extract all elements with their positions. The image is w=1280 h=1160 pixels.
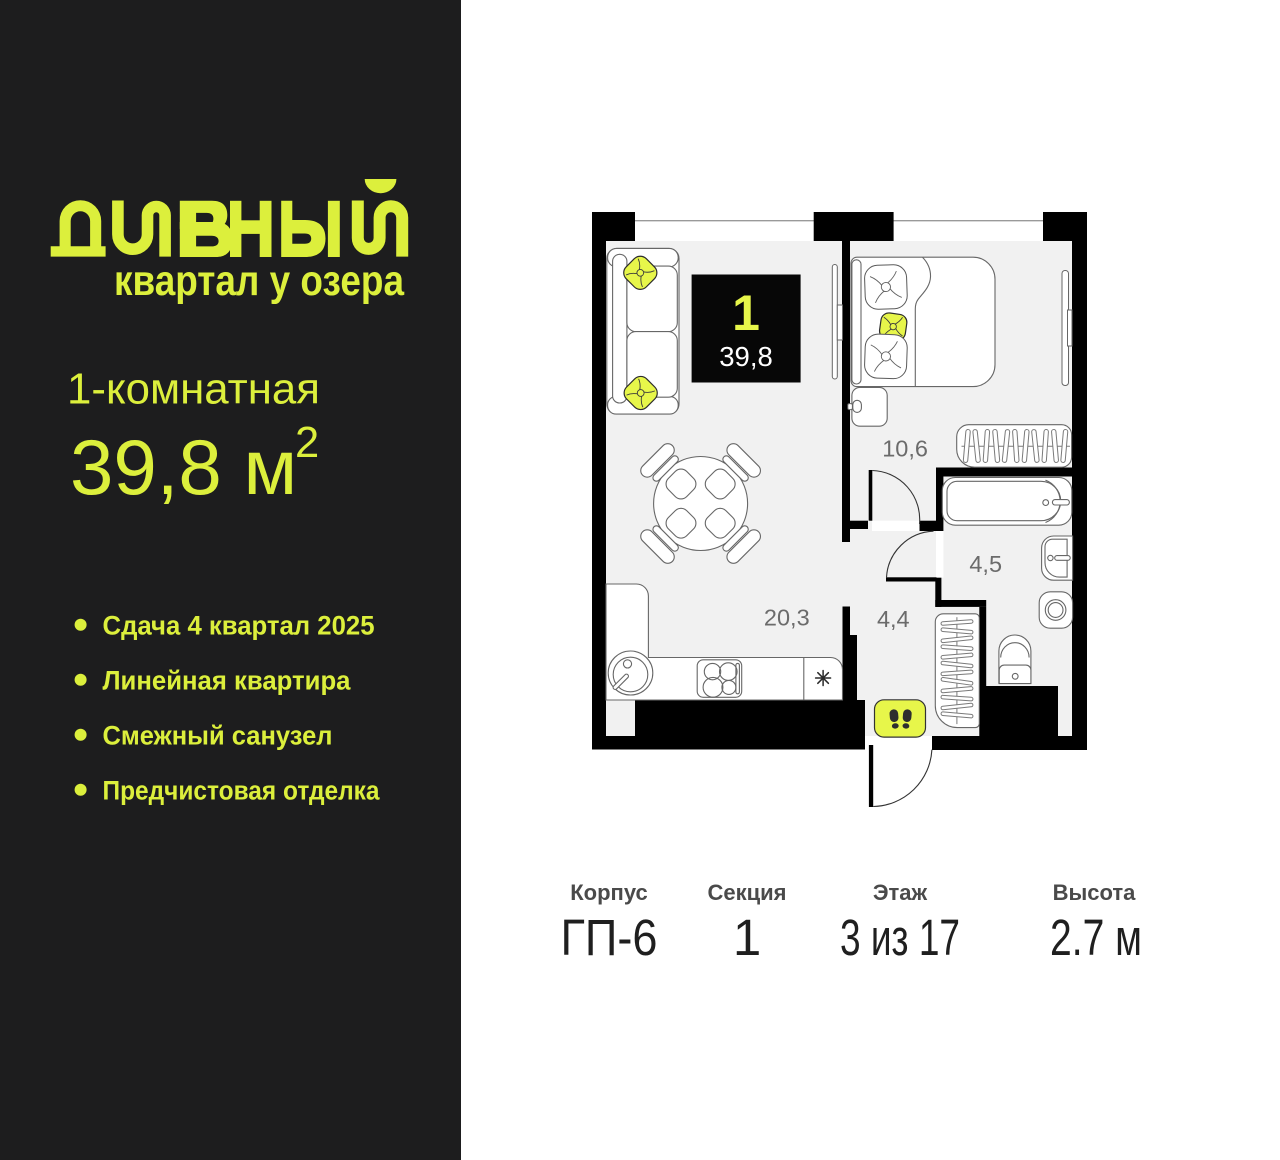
svg-text:2.7 м: 2.7 м	[1050, 909, 1142, 966]
svg-text:1: 1	[732, 285, 760, 341]
svg-text:Сдача 4 квартал 2025: Сдача 4 квартал 2025	[103, 611, 375, 641]
svg-text:Линейная квартира: Линейная квартира	[103, 666, 352, 696]
svg-text:39,8: 39,8	[719, 341, 773, 372]
svg-text:1: 1	[733, 909, 761, 966]
svg-text:Этаж: Этаж	[873, 880, 928, 905]
svg-text:4,5: 4,5	[969, 551, 1002, 577]
svg-text:квартал у озера: квартал у озера	[114, 257, 405, 305]
svg-text:1-комнатная: 1-комнатная	[67, 366, 320, 414]
svg-text:20,3: 20,3	[764, 605, 810, 631]
svg-text:Корпус: Корпус	[570, 880, 648, 905]
svg-text:Смежный санузел: Смежный санузел	[103, 721, 333, 751]
svg-text:4,4: 4,4	[877, 606, 910, 632]
svg-text:3 из 17: 3 из 17	[840, 909, 960, 966]
svg-text:10,6: 10,6	[882, 436, 928, 462]
svg-text:Секция: Секция	[707, 880, 786, 905]
svg-text:ГП-6: ГП-6	[561, 909, 658, 966]
svg-text:Предчистовая отделка: Предчистовая отделка	[103, 776, 381, 806]
svg-text:Высота: Высота	[1053, 880, 1137, 905]
svg-text:2: 2	[295, 419, 319, 467]
svg-text:39,8 м: 39,8 м	[70, 423, 297, 511]
